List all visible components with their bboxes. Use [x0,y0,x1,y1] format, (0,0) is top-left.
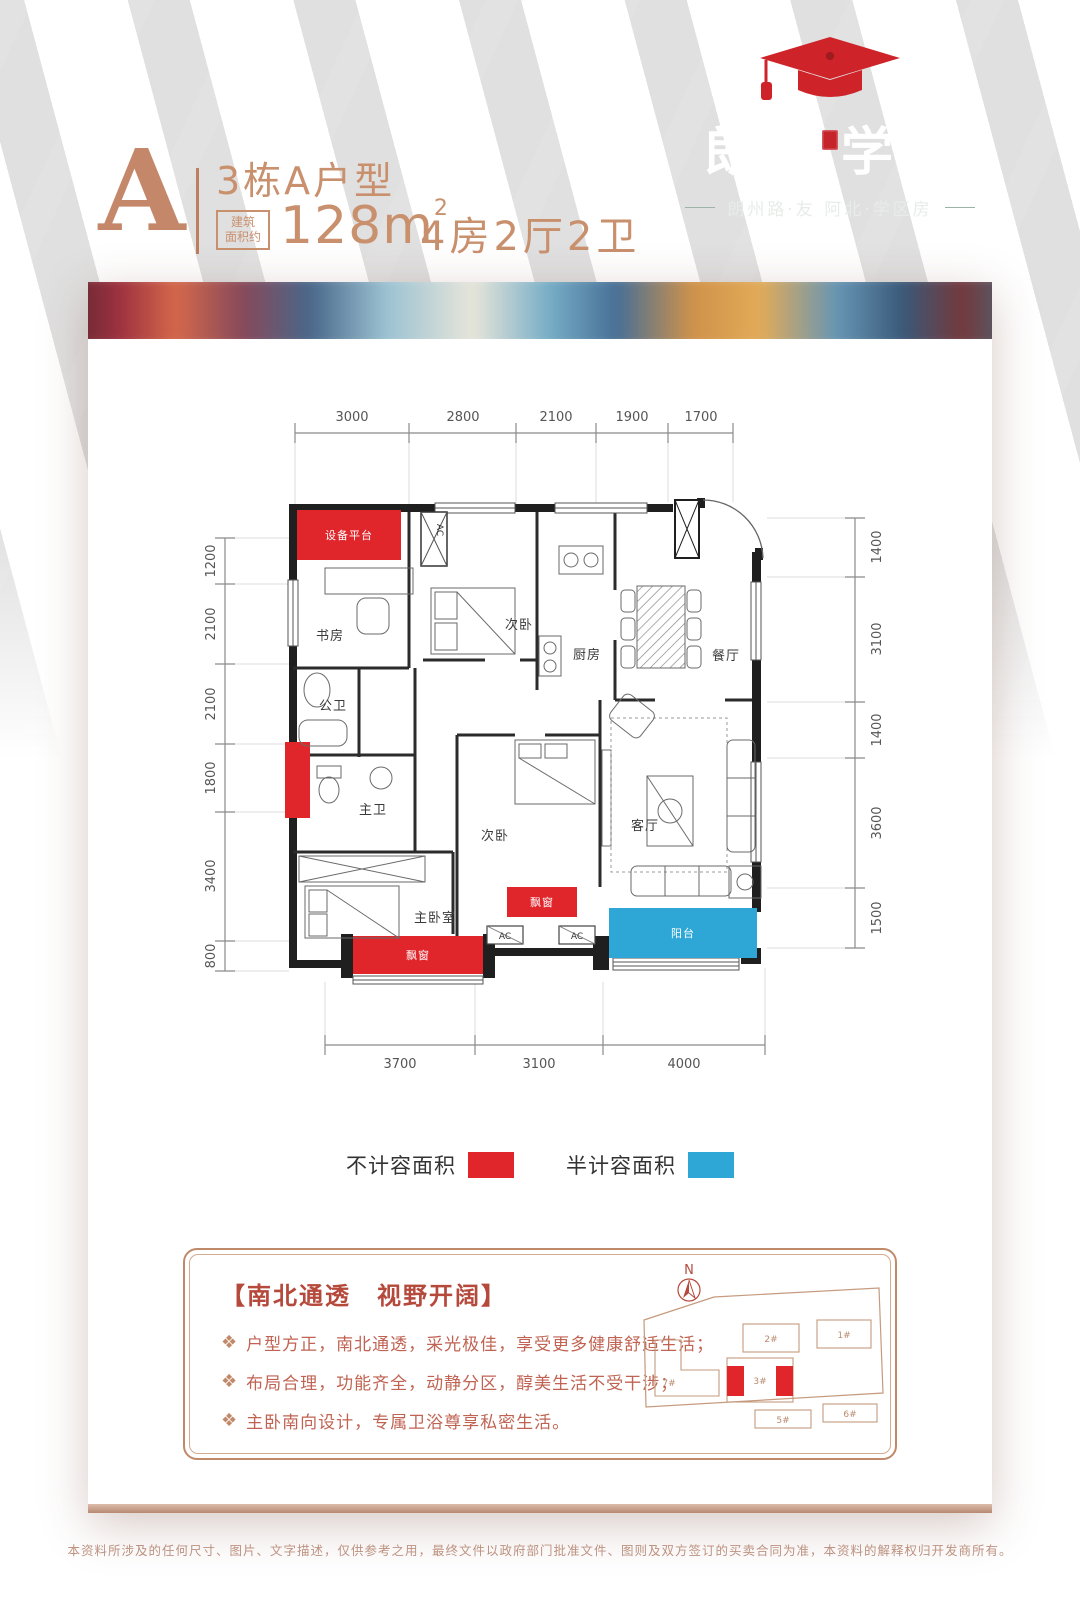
site-highlight-right [776,1366,793,1396]
brand-name: 朗州学府 [655,110,1005,185]
living-label: 客厅 [631,818,659,834]
dim-left-3: 2100 [204,687,219,720]
dim-left-6: 800 [204,944,219,969]
legend-item-blue: 半计容面积 [566,1150,734,1180]
building-7-label: 7# [662,1379,675,1389]
bay-window2-label: 飘窗 [530,895,554,909]
balcony-label: 阳台 [671,926,695,940]
area-badge-line1: 建筑 [218,215,268,230]
disclaimer-text: 本资料所涉及的任何尺寸、图片、文字描述，仅供参考之用，最终文件以政府部门批准文件… [0,1540,1080,1559]
dim-bottom-3: 4000 [667,1057,700,1072]
dim-bottom-1: 3700 [383,1057,416,1072]
bedroom3-label: 次卧 [481,828,509,844]
features-box: 【南北通透 视野开阔】 ❖户型方正，南北通透，采光极佳，享受更多健康舒适生活； … [183,1248,897,1460]
building-5-label: 5# [776,1416,789,1426]
study-label: 书房 [316,628,344,644]
diamond-bullet-icon: ❖ [221,1373,238,1391]
unit-letter: A [92,136,192,248]
brand-seal-icon [822,130,838,150]
area-badge-line2: 面积约 [218,230,268,245]
ac-shaft-label: AC [434,524,444,536]
area-badge: 建筑 面积约 [216,210,270,250]
brand-logo: 朗州学府 朗州路·友 阿北·学区房 [655,34,1005,220]
site-highlight-left [727,1366,744,1396]
bedroom2-label: 次卧 [505,617,533,633]
building-3-label: 3# [753,1377,766,1387]
feature-bullet-text: 主卧南向设计，专属卫浴尊享私密生活。 [246,1408,570,1433]
site-building-labels: 7# 3# 2# 1# 5# 6# [662,1331,856,1426]
dim-right-3: 1400 [870,713,885,746]
ac-unit2-label: AC [571,932,583,942]
brand-tagline: 朗州路·友 阿北·学区房 [655,195,1005,220]
diamond-bullet-icon: ❖ [221,1412,238,1430]
equipment-platform-label: 设备平台 [325,528,373,542]
building-6-label: 6# [843,1410,856,1420]
legend: 不计容面积 半计容面积 [88,1150,992,1180]
compass-icon: N [678,1263,700,1301]
dim-top-2: 2800 [446,410,479,425]
dim-left-4: 1800 [204,761,219,794]
dim-top-1: 3000 [335,410,368,425]
compass-label: N [684,1263,694,1278]
red-strip-zone [285,742,310,818]
legend-red-swatch [468,1152,514,1178]
interior-walls [293,512,752,946]
flyer-page: A 3栋A户型 建筑 面积约 128m2 4房2厅2卫 朗州学府 朗州路·友 阿… [0,0,1080,1619]
dim-right-5: 1500 [870,901,885,934]
flyer-card: 3000 2800 2100 1900 1700 1200 2100 2100 … [88,282,992,1513]
graduation-cap-icon [750,34,910,108]
legend-blue-label: 半计容面积 [566,1150,676,1180]
dim-left-5: 3400 [204,859,219,892]
dim-left-2: 2100 [204,607,219,640]
dim-right-1: 1400 [870,530,885,563]
dim-top-5: 1700 [684,410,717,425]
kitchen-label: 厨房 [573,647,601,663]
guest-bath-label: 公卫 [319,699,347,714]
dim-bottom-2: 3100 [522,1057,555,1072]
dim-right-4: 3600 [870,806,885,839]
diamond-bullet-icon: ❖ [221,1334,238,1352]
rooms-summary: 4房2厅2卫 [420,204,640,262]
bay-window1-label: 飘窗 [406,948,430,962]
dining-label: 餐厅 [712,648,740,664]
dim-right-2: 3100 [870,622,885,655]
dim-top-3: 2100 [539,410,572,425]
entry-door [675,500,763,558]
building-2-label: 2# [764,1335,777,1345]
floor-plan: 3000 2800 2100 1900 1700 1200 2100 2100 … [185,390,905,1090]
legend-red-label: 不计容面积 [346,1150,456,1180]
site-plan: N 7# 3# [609,1254,889,1456]
master-bedroom-label: 主卧室 [414,910,456,926]
ac-shaft: AC [421,512,447,566]
abstract-art-band [88,282,992,339]
master-bath-label: 主卫 [359,803,387,818]
card-footer-bar [88,1504,992,1513]
legend-item-red: 不计容面积 [346,1150,514,1180]
dim-left-1: 1200 [204,544,219,577]
building-1-label: 1# [837,1331,850,1341]
dim-top-4: 1900 [615,410,648,425]
furniture [299,546,761,938]
header-divider [196,168,199,254]
ac-unit1-label: AC [499,932,511,942]
ac-units: AC AC [487,926,595,944]
legend-blue-swatch [688,1152,734,1178]
features-title: 【南北通透 视野开阔】 [221,1276,507,1311]
special-zones: 设备平台 飘窗 飘窗 阳台 [285,510,757,974]
